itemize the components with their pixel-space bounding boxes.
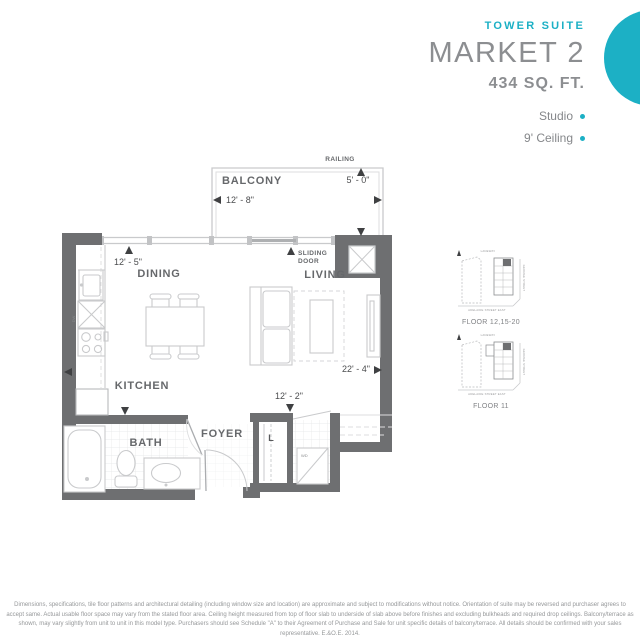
highlighted-unit <box>503 343 511 350</box>
sliding-door <box>252 239 296 242</box>
header: TOWER SUITE MARKET 2 434 SQ. FT. Studio … <box>428 20 585 145</box>
street-bottom: ADELAIDE STREET EAST <box>468 392 506 396</box>
feature-studio: Studio <box>539 109 585 123</box>
bullet-icon <box>580 114 585 119</box>
sliding-door-label-2: DOOR <box>298 258 319 265</box>
collection-label: TOWER SUITE <box>485 20 585 32</box>
feature-ceiling: 9' Ceiling <box>524 131 585 145</box>
feature-label: 9' Ceiling <box>524 131 573 145</box>
dishwasher-label: DW <box>71 315 76 322</box>
dim-entry-width: 12' - 2" <box>275 391 303 401</box>
street-right: GEORGE STREET <box>522 265 526 292</box>
highlighted-unit <box>503 259 511 266</box>
balcony-label: BALCONY <box>222 175 282 187</box>
linen-label: L <box>268 433 274 443</box>
bath-door <box>187 419 202 455</box>
living-furniture <box>250 287 380 365</box>
suite-area: 434 SQ. FT. <box>489 75 585 93</box>
keyplan-caption: FLOOR 12,15-20 <box>462 319 520 326</box>
railing-label: RAILING <box>325 156 355 163</box>
suite-name: MARKET 2 <box>428 37 585 70</box>
keyplan-upper: LANEWAY GEORGE STREET ADELAIDE STREET EA… <box>457 249 526 326</box>
kitchen-label: KITCHEN <box>115 380 170 392</box>
dim-suite-length: 22' - 4" <box>342 364 370 374</box>
street-bottom: ADELAIDE STREET EAST <box>468 308 506 312</box>
feature-list: Studio 9' Ceiling <box>524 109 585 145</box>
dim-balcony-width: 12' - 8" <box>226 195 254 205</box>
living-label: LIVING <box>304 269 345 281</box>
dimensions: 12' - 8" 5' - 0" 12' - 5" 22' - 4" 12' -… <box>64 168 382 415</box>
street-top: LANEWAY <box>481 333 496 337</box>
dining-set <box>146 294 204 359</box>
dim-suite-width: 12' - 5" <box>114 257 142 267</box>
sliding-door-label-1: SLIDING <box>298 250 327 257</box>
toilet <box>117 451 135 476</box>
north-arrow <box>457 334 461 340</box>
dim-balcony-depth: 5' - 0" <box>347 175 370 185</box>
foyer-label: FOYER <box>201 428 243 440</box>
window-band <box>100 236 335 245</box>
wd-label: WD <box>301 453 308 458</box>
street-top: LANEWAY <box>481 249 496 253</box>
feature-label: Studio <box>539 109 573 123</box>
kitchen-fixtures <box>76 245 108 415</box>
shaft-x-icon <box>349 246 375 273</box>
keyplan-lower: LANEWAY GEORGE STREET ADELAIDE STREET EA… <box>457 333 526 410</box>
bullet-icon <box>580 136 585 141</box>
coffee-table <box>310 300 333 353</box>
dining-label: DINING <box>137 268 180 280</box>
bath-label: BATH <box>130 437 163 449</box>
north-arrow <box>457 250 461 256</box>
disclaimer-text: Dimensions, specifications, tile floor p… <box>5 601 635 639</box>
keyplan-caption: FLOOR 11 <box>473 403 509 410</box>
street-right: GEORGE STREET <box>522 349 526 376</box>
